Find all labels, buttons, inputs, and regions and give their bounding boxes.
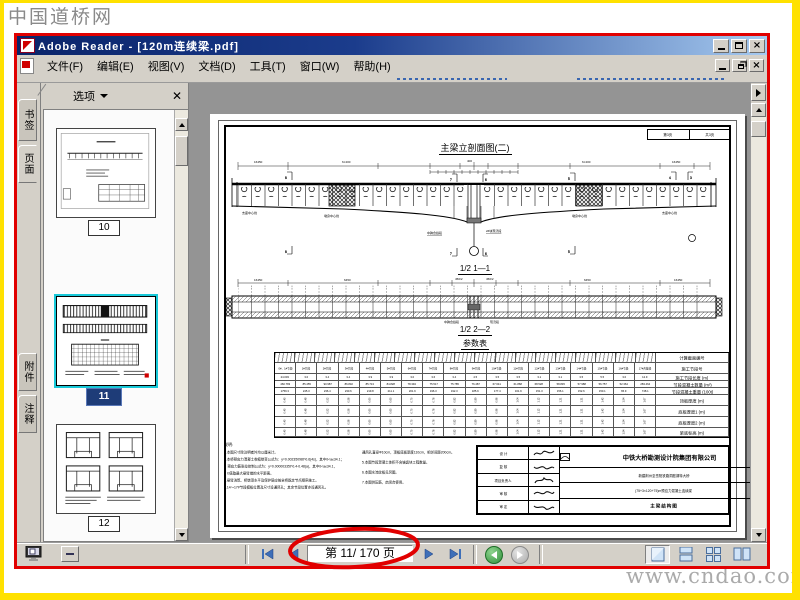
param-cell: 2#节段 — [317, 363, 338, 374]
param-cell: 0.60 — [360, 395, 381, 406]
title-block: 设 计 复 核 项目负责人 审 核 审 定 — [476, 445, 730, 515]
nav-tab-strip: 书签 页面 附件 注释 — [17, 83, 41, 542]
section2-label: 1/2 2—2 — [420, 325, 530, 334]
param-cell: 10#节段 — [487, 363, 508, 374]
separator — [539, 545, 543, 564]
param-cell: 0.65 — [381, 395, 402, 406]
param-cell: 1759.3 — [275, 388, 296, 395]
last-page-button[interactable] — [443, 545, 467, 563]
param-cell: 1.67 — [635, 406, 656, 417]
param-cell: 1.04 — [508, 395, 529, 406]
toolbar-dots — [397, 78, 507, 80]
param-cell: 1.21 — [550, 428, 571, 437]
param-cell: 90.987 — [317, 381, 338, 388]
single-page-icon — [651, 547, 665, 562]
param-cell: 13#节段 — [550, 363, 571, 374]
sign-label: 审 定 — [478, 501, 528, 513]
param-cell — [596, 353, 616, 363]
pages-panel: 选项 ✕ — [41, 83, 189, 542]
param-cell: 67.641 — [487, 381, 508, 388]
toolbar-stub — [17, 76, 767, 82]
param-cell: 9#节段 — [466, 363, 487, 374]
param-cell: 0.76 — [423, 428, 444, 437]
param-cell: 0.89 — [466, 417, 487, 428]
layout-single-page-button[interactable] — [645, 545, 670, 564]
param-row-label: 节段混凝土重量 (100t) — [656, 388, 729, 395]
doc-close-button[interactable]: × — [749, 59, 764, 72]
param-cell: 0.65 — [381, 428, 402, 437]
previous-view-button[interactable] — [485, 546, 503, 564]
param-cell: 75.517 — [423, 381, 444, 388]
param-cell: 283.464 — [635, 381, 656, 388]
close-icon: × — [753, 41, 761, 51]
param-cell: 1.04 — [508, 428, 529, 437]
param-cell: 78.394 — [402, 381, 423, 388]
param-cell: 0.70 — [402, 417, 423, 428]
param-cell: 5.5 — [593, 374, 614, 381]
param-cell — [556, 353, 576, 363]
continuous-icon — [678, 547, 694, 562]
tab-comments-label: 注释 — [20, 403, 35, 425]
param-cell — [496, 353, 516, 363]
param-cell: 0.56 — [339, 395, 360, 406]
panel-close-icon[interactable]: ✕ — [172, 90, 182, 102]
param-cell — [275, 353, 295, 363]
param-row-label: 施工节段号 — [656, 363, 729, 374]
param-cell: 0.48 — [296, 417, 317, 428]
param-cell: 1.12 — [529, 406, 550, 417]
scroll-up-button[interactable] — [751, 103, 766, 117]
sign-label: 设 计 — [478, 447, 528, 460]
param-row-label: 梁底标高 (m) — [656, 428, 729, 437]
param-cell: 57.988 — [571, 381, 592, 388]
collapse-toolbar-button[interactable] — [61, 546, 79, 562]
dim-text: 16450 — [254, 278, 263, 282]
beam-label: 支座中心线 — [242, 210, 257, 215]
param-cell: 0#、1#节段 — [275, 363, 296, 374]
vertical-scrollbar-column — [750, 83, 767, 542]
window-title: Adobe Reader - [120m连续梁.pdf] — [38, 38, 711, 54]
first-page-button[interactable] — [255, 545, 279, 563]
param-cell: 0.45 — [275, 417, 296, 428]
param-cell: 0.52 — [317, 395, 338, 406]
sheet-page: 第3页 — [664, 132, 673, 137]
separator — [473, 545, 477, 564]
thumbnail-scrollbar[interactable] — [174, 110, 188, 541]
param-cell: 0.82 — [444, 395, 465, 406]
param-cell: 8#节段 — [444, 363, 465, 374]
scrollbar-thumb[interactable] — [751, 121, 766, 137]
fullscreen-mode-icon[interactable] — [25, 546, 43, 562]
options-menu[interactable]: 选项 — [73, 88, 95, 104]
view1-title: 主梁立剖面图(二) — [395, 141, 555, 154]
scrollbar-thumb[interactable] — [175, 136, 188, 166]
span-config: (75+3×120+75)m预应力混凝土连续梁 — [560, 483, 750, 498]
param-cell: 16#节段 — [614, 363, 635, 374]
param-cell — [335, 353, 355, 363]
param-cell: 1.67 — [635, 395, 656, 406]
param-cell: 0.56 — [339, 417, 360, 428]
company-logo — [560, 453, 570, 461]
arrow-down-icon — [756, 533, 762, 537]
options-dropdown-icon[interactable] — [100, 94, 108, 98]
param-cell: 3.4 — [317, 374, 338, 381]
project-name: 新建荆州至岳阳铁路洞庭湖特大桥 — [560, 468, 750, 483]
param-cell: 1.31 — [571, 406, 592, 417]
param-cell: 0.70 — [402, 406, 423, 417]
layout-facing-button[interactable] — [729, 545, 754, 564]
facing-icon — [733, 547, 751, 562]
param-cell — [616, 353, 636, 363]
param-cell: 65.9 — [614, 388, 635, 395]
param-cell: 211.1 — [381, 388, 402, 395]
dim-text: 450/2 — [486, 277, 494, 281]
param-cell: 0.96 — [487, 406, 508, 417]
signature-scribble — [529, 487, 559, 500]
thumbnail-label-12[interactable]: 12 — [88, 516, 120, 532]
notes-heading: 说明: — [224, 440, 247, 446]
param-row-label: 计算截面编号 — [656, 353, 729, 363]
last-page-icon — [449, 548, 462, 560]
param-cell: 3.0 — [402, 374, 423, 381]
param-table-row: 0#、1#节段1#节段2#节段3#节段4#节段5#节段6#节段7#节段8#节段9… — [275, 363, 729, 374]
doc-minimize-button[interactable] — [715, 59, 730, 72]
toolbar-dots — [577, 78, 727, 80]
param-cell: 0.60 — [360, 417, 381, 428]
dim-text: 400 — [467, 159, 472, 163]
param-row-label: 施工节段长度 (m) — [656, 374, 729, 381]
param-cell — [395, 353, 415, 363]
company-name: 中铁大桥勘测设计院集团有限公司 — [623, 452, 717, 461]
param-table-row: 24.0033.03.43.43.93.93.03.63.44.53.53.53… — [275, 374, 729, 381]
param-cell: 0.56 — [339, 428, 360, 437]
param-cell: 196.3 — [423, 388, 444, 395]
menu-view[interactable]: 视图(V) — [141, 56, 192, 76]
param-cell: 177.4 — [487, 388, 508, 395]
param-cell: 3.1 — [550, 374, 571, 381]
minimize-icon — [718, 48, 725, 50]
param-table: 计算截面编号0#、1#节段1#节段2#节段3#节段4#节段5#节段6#节段7#节… — [274, 352, 730, 438]
doc-close-icon: × — [752, 61, 760, 71]
dim-text: 450/2 — [455, 277, 463, 281]
param-cell: 1.12 — [529, 417, 550, 428]
menu-window[interactable]: 窗口(W) — [293, 56, 347, 76]
continuous-facing-icon — [706, 547, 722, 562]
param-cell: 1.31 — [571, 395, 592, 406]
tab-comments[interactable]: 注释 — [18, 395, 37, 433]
param-cell: 4#节段 — [360, 363, 381, 374]
param-cell: 1.54 — [614, 395, 635, 406]
param-cell: 24.003 — [275, 374, 296, 381]
vertical-scrollbar[interactable] — [751, 103, 766, 542]
param-cell: 12#节段 — [529, 363, 550, 374]
param-cell: 0.48 — [296, 406, 317, 417]
site-watermark-top: 中国道桥网 — [8, 2, 113, 29]
param-cell: 0.60 — [360, 406, 381, 417]
param-cell: 1.54 — [614, 417, 635, 428]
param-cell: 1.67 — [635, 428, 656, 437]
note-line: 7.本图供压筋，启闭合使用。 — [362, 478, 490, 484]
arrow-up-icon — [756, 108, 762, 112]
param-cell: 185.9 — [466, 388, 487, 395]
menu-help[interactable]: 帮助(H) — [346, 56, 397, 76]
param-cell: 0.45 — [275, 428, 296, 437]
param-cell — [435, 353, 455, 363]
minus-icon — [66, 553, 74, 555]
param-cell — [636, 353, 656, 363]
param-cell: 0.96 — [487, 428, 508, 437]
param-cell: 0.52 — [317, 417, 338, 428]
param-cell: 0.89 — [466, 406, 487, 417]
param-cell — [355, 353, 375, 363]
param-cell: 0.89 — [466, 395, 487, 406]
param-cell: 3.9 — [381, 374, 402, 381]
beam-label: 中跨合拢段 — [444, 319, 459, 324]
previous-page-button[interactable] — [281, 545, 305, 563]
svg-text:6: 6 — [485, 252, 487, 256]
param-cell: 1.42 — [593, 395, 614, 406]
param-cell: 219.8 — [360, 388, 381, 395]
sign-label: 审 核 — [478, 487, 528, 500]
annotation-marker — [145, 373, 149, 377]
note-line: b值取最大悬臂端的水平距离。 — [224, 469, 370, 475]
panel-header: 选项 ✕ — [41, 83, 188, 109]
param-cell: 1.67 — [635, 417, 656, 428]
svg-text:8: 8 — [285, 250, 287, 254]
param-cell: 56.757 — [593, 381, 614, 388]
param-cell — [375, 353, 395, 363]
close-button[interactable]: × — [749, 39, 765, 53]
param-cell: 58.845 — [550, 381, 571, 388]
param-cell: 1.42 — [593, 417, 614, 428]
maximize-button[interactable] — [731, 39, 747, 53]
param-table-row: 计算截面编号 — [275, 353, 729, 363]
param-row-label: 底板厚度1 (m) — [656, 406, 729, 417]
param-cell: 0.52 — [317, 406, 338, 417]
thumbnail-page-12[interactable] — [56, 424, 156, 514]
dim-text: 6450 — [344, 278, 351, 282]
param-cell: 460.783 — [275, 381, 296, 388]
param-cell: 76.487 — [466, 381, 487, 388]
param-cell: 1.42 — [593, 406, 614, 417]
scroll-down-button[interactable] — [175, 528, 188, 541]
drawing-name: 主梁结构图 — [560, 499, 750, 513]
note-line: 6.本图水流纹板见另图。 — [362, 468, 470, 474]
param-cell: 245.3 — [296, 388, 317, 395]
param-row-label: 底板厚度2 (m) — [656, 417, 729, 428]
arrow-right-icon — [756, 89, 761, 97]
svg-text:8: 8 — [285, 176, 287, 180]
param-cell: 3.0 — [614, 374, 635, 381]
doc-minimize-icon — [719, 68, 726, 70]
title-bar[interactable]: Adobe Reader - [120m连续梁.pdf] × — [17, 36, 767, 55]
param-cell: 14#节段 — [571, 363, 592, 374]
svg-text:4: 4 — [669, 176, 671, 180]
param-row-label: 顶板厚度 (m) — [656, 395, 729, 406]
param-cell: 1.04 — [508, 417, 529, 428]
param-cell: 0.82 — [444, 428, 465, 437]
note-line: 1.本图尺寸除注明者外均以厘米计。 — [224, 448, 382, 454]
next-view-button[interactable] — [511, 546, 529, 564]
thumbnail-label-11[interactable]: 11 — [86, 388, 122, 406]
menu-tools[interactable]: 工具(T) — [243, 56, 293, 76]
thumbnail-page-10[interactable] — [56, 128, 156, 218]
doc-restore-icon — [738, 64, 744, 69]
status-bar: 第 11/ 170 页 — [17, 542, 767, 566]
signature-scribble — [529, 501, 559, 513]
previous-page-icon — [288, 548, 299, 560]
param-cell: 3.4 — [339, 374, 360, 381]
next-page-button[interactable] — [417, 545, 441, 563]
thumbnail-preview — [57, 297, 153, 383]
param-cell: 3.1 — [529, 374, 550, 381]
param-cell: 7#节段 — [423, 363, 444, 374]
pdf-document-icon[interactable] — [20, 58, 34, 74]
param-cell: 1.42 — [593, 428, 614, 437]
param-cell: 236.4 — [317, 388, 338, 395]
maximize-icon — [735, 42, 743, 49]
svg-text:6: 6 — [485, 178, 487, 182]
elevation-view: 16450 6×400 400 6×400 16450 8 7 6 5 4 3 … — [224, 154, 724, 264]
signature-scribble — [529, 460, 559, 473]
adobe-reader-window: Adobe Reader - [120m连续梁.pdf] × 文件(F) 编辑(… — [14, 33, 770, 569]
pdf-page: 第3页 共3页 主梁立剖面图(二) — [210, 114, 745, 538]
beam-label: 支座中心线 — [662, 210, 677, 215]
param-cell — [475, 353, 495, 363]
thumbnail-page-11[interactable] — [56, 296, 156, 386]
param-cell: 0.65 — [381, 417, 402, 428]
param-cell: 1.54 — [614, 428, 635, 437]
param-table-title: 参数表 — [420, 338, 530, 349]
svg-text:5: 5 — [568, 250, 570, 254]
sheet-number-box: 第3页 共3页 — [647, 129, 731, 140]
param-cell: 1.04 — [508, 406, 529, 417]
param-cell: 201.9 — [402, 388, 423, 395]
param-cell: 86.832 — [339, 381, 360, 388]
dim-text: 16450 — [254, 160, 263, 164]
param-cell: 161.9 — [508, 388, 529, 395]
param-cell: 1.21 — [550, 417, 571, 428]
dim-text: 16450 — [672, 160, 681, 164]
param-cell: 68.528 — [529, 381, 550, 388]
param-cell: 75.785 — [444, 381, 465, 388]
menu-edit[interactable]: 编辑(E) — [90, 56, 141, 76]
svg-text:3: 3 — [690, 176, 692, 180]
param-row-label: 节段混凝土数量 (m³) — [656, 381, 729, 388]
param-cell: 15#节段 — [593, 363, 614, 374]
param-cell: 85.455 — [296, 381, 317, 388]
tab-bookmarks-label: 书签 — [20, 109, 35, 131]
param-cell: 1.21 — [550, 395, 571, 406]
layout-continuous-button[interactable] — [673, 545, 698, 564]
param-cell: 3.5 — [571, 374, 592, 381]
param-cell: 1#节段 — [296, 363, 317, 374]
param-cell: 3#节段 — [339, 363, 360, 374]
param-table-row: 0.450.480.520.560.600.650.700.760.820.89… — [275, 428, 729, 437]
menu-document[interactable]: 文档(D) — [191, 56, 242, 76]
param-cell: 3.5 — [487, 374, 508, 381]
dim-text: 16450 — [674, 278, 683, 282]
param-cell: 0.65 — [381, 406, 402, 417]
param-cell: 0.96 — [487, 395, 508, 406]
tab-connector-line — [37, 84, 62, 108]
arrow-up-icon — [179, 123, 185, 127]
document-canvas[interactable]: 第3页 共3页 主梁立剖面图(二) — [189, 83, 750, 542]
param-cell: 0.56 — [339, 406, 360, 417]
page-number-field[interactable]: 第 11/ 170 页 — [307, 545, 413, 562]
param-cell: 1.31 — [571, 417, 592, 428]
param-table-row: 0.450.480.520.560.600.650.700.760.820.89… — [275, 406, 729, 417]
tab-bookmarks[interactable]: 书签 — [18, 99, 37, 141]
param-cell: 1.12 — [529, 395, 550, 406]
param-cell: 0.45 — [275, 395, 296, 406]
layout-continuous-facing-button[interactable] — [701, 545, 726, 564]
param-cell: 0.76 — [423, 417, 444, 428]
param-cell: 3.6 — [423, 374, 444, 381]
param-cell: 150.1 — [593, 388, 614, 395]
dim-text: 6×400 — [342, 160, 351, 164]
param-cell — [536, 353, 556, 363]
param-cell: 0.52 — [317, 428, 338, 437]
sign-label: 项目负责人 — [478, 474, 528, 487]
minimize-button[interactable] — [713, 39, 729, 53]
adobe-reader-icon — [20, 38, 35, 53]
thumbnail-preview — [57, 425, 153, 511]
param-cell: 6#节段 — [402, 363, 423, 374]
tab-pages-label: 页面 — [20, 153, 35, 175]
param-cell: 152.6 — [571, 388, 592, 395]
param-cell: 11#节段 — [508, 363, 529, 374]
tab-pages[interactable]: 页面 — [18, 145, 37, 183]
toolbar-overflow-button[interactable] — [751, 84, 766, 101]
param-cell: 0.60 — [360, 428, 381, 437]
param-cell: 1.12 — [529, 428, 550, 437]
param-cell: 0.82 — [444, 406, 465, 417]
param-cell: 0.89 — [466, 428, 487, 437]
param-cell: 0.82 — [444, 417, 465, 428]
menu-file[interactable]: 文件(F) — [40, 56, 90, 76]
param-cell — [455, 353, 475, 363]
section1-label: 1/2 1—1 — [420, 264, 530, 273]
param-cell — [295, 353, 315, 363]
tab-attachments[interactable]: 附件 — [18, 353, 37, 391]
scroll-down-button[interactable] — [751, 528, 766, 542]
beam-label: 墩身中心线 — [572, 213, 587, 218]
param-cell: 61.868 — [508, 381, 529, 388]
param-table-row: 0.450.480.520.560.600.650.700.760.820.89… — [275, 395, 729, 406]
param-cell — [516, 353, 536, 363]
param-cell: 0.76 — [423, 395, 444, 406]
forward-arrow-icon — [516, 551, 524, 559]
param-cell: 3.9 — [360, 374, 381, 381]
thumbnail-label-10[interactable]: 10 — [88, 220, 120, 236]
back-arrow-icon — [490, 551, 498, 559]
param-cell: 748.1 — [635, 388, 656, 395]
signature-scribble — [529, 447, 559, 460]
param-cell: 1.31 — [571, 428, 592, 437]
param-cell: 156.1 — [550, 388, 571, 395]
param-cell: 0.96 — [487, 417, 508, 428]
doc-restore-button[interactable] — [732, 59, 747, 72]
param-cell: 4.5 — [466, 374, 487, 381]
scroll-up-button[interactable] — [175, 118, 188, 131]
param-cell — [415, 353, 435, 363]
next-page-icon — [424, 548, 435, 560]
param-cell: 0.45 — [275, 406, 296, 417]
beam-label: 现浇段 — [490, 319, 499, 324]
param-cell: 85.713 — [360, 381, 381, 388]
company-row: 中铁大桥勘测设计院集团有限公司 — [560, 447, 750, 468]
